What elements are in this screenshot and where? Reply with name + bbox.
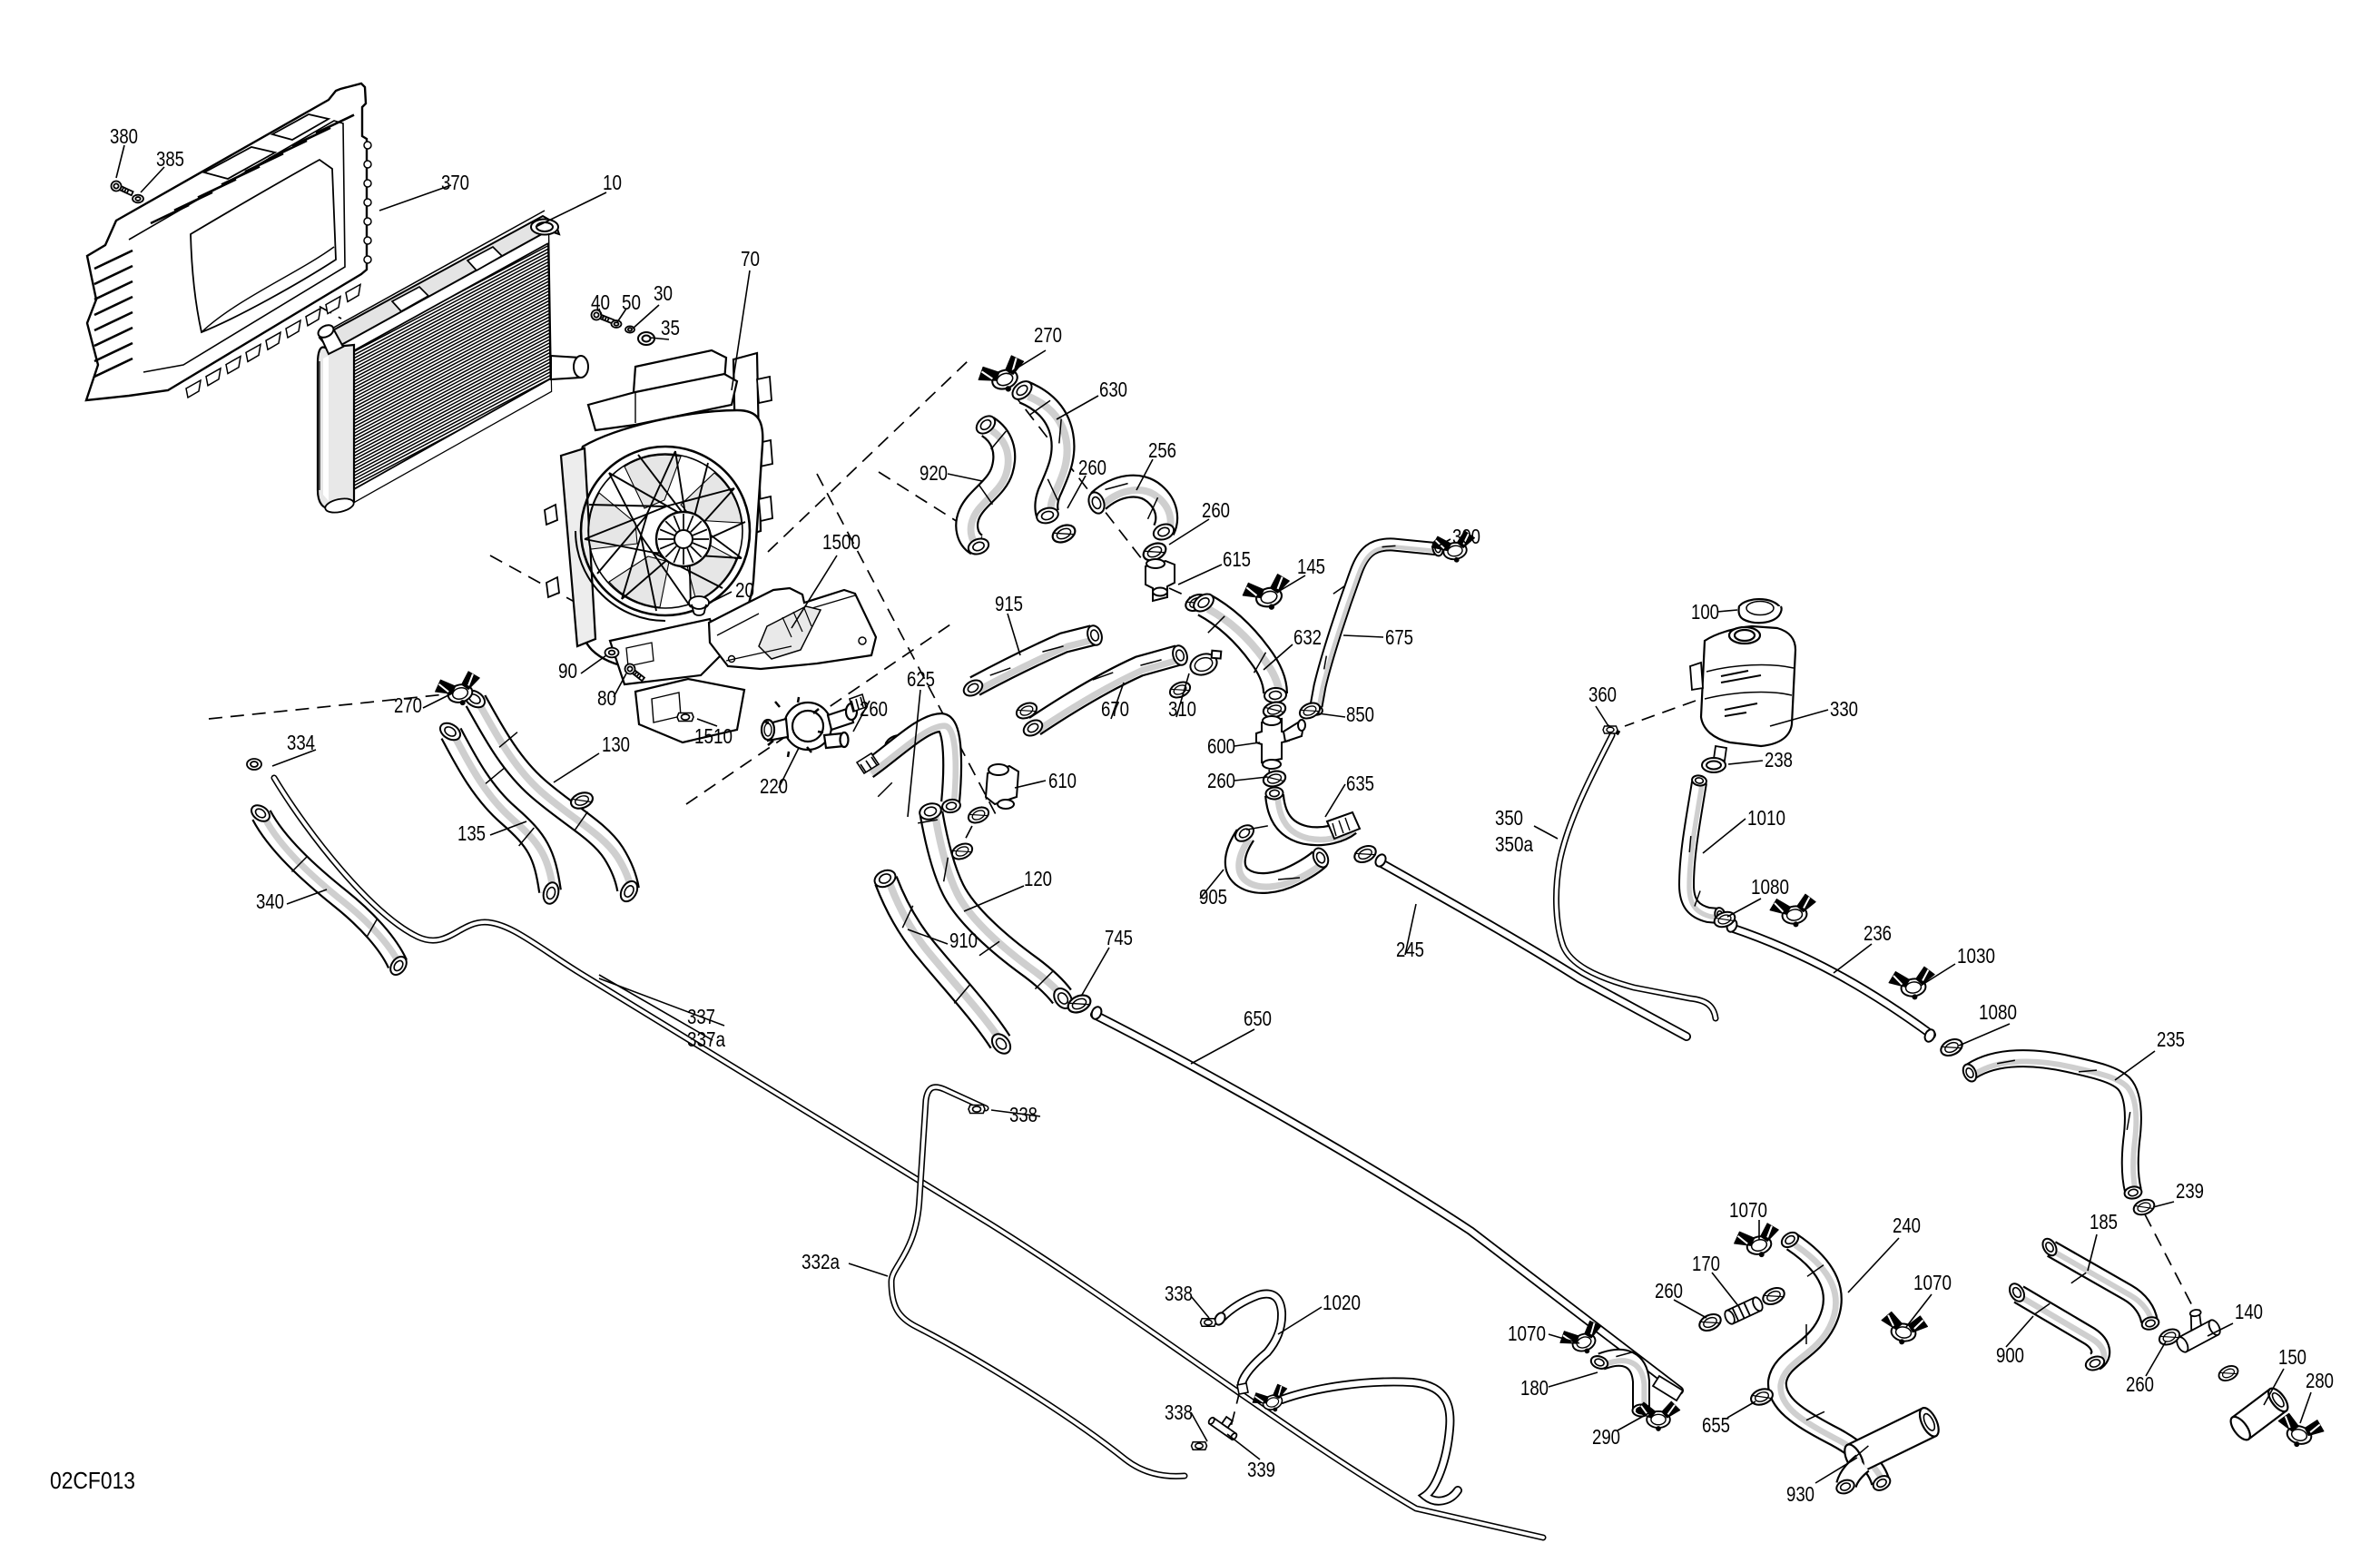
svg-text:920: 920 (920, 461, 948, 485)
svg-text:245: 245 (1396, 938, 1424, 961)
svg-text:140: 140 (2235, 1300, 2263, 1323)
svg-text:270: 270 (1034, 323, 1062, 347)
svg-text:910: 910 (949, 929, 978, 952)
svg-text:380: 380 (110, 124, 138, 148)
svg-text:1500: 1500 (822, 530, 861, 554)
svg-text:1080: 1080 (1979, 1000, 2017, 1024)
svg-text:360: 360 (1588, 683, 1617, 706)
svg-text:256: 256 (1148, 438, 1176, 462)
svg-text:655: 655 (1702, 1413, 1730, 1437)
svg-text:260: 260 (1202, 498, 1230, 522)
svg-text:90: 90 (558, 659, 577, 683)
svg-text:70: 70 (741, 247, 760, 270)
svg-text:337: 337 (687, 1005, 715, 1028)
svg-text:650: 650 (1244, 1007, 1272, 1030)
svg-text:80: 80 (597, 686, 616, 710)
svg-text:610: 610 (1048, 769, 1077, 792)
svg-text:220: 220 (760, 774, 788, 798)
svg-text:1070: 1070 (1508, 1322, 1546, 1345)
svg-text:615: 615 (1223, 547, 1251, 571)
svg-text:350a: 350a (1495, 832, 1533, 856)
svg-text:240: 240 (1893, 1214, 1921, 1237)
svg-text:290: 290 (1592, 1425, 1620, 1449)
svg-text:745: 745 (1105, 926, 1133, 949)
svg-text:338: 338 (1165, 1282, 1193, 1305)
svg-text:260: 260 (860, 697, 888, 721)
svg-text:40: 40 (591, 290, 610, 314)
svg-text:370: 370 (441, 171, 469, 194)
svg-text:915: 915 (995, 592, 1023, 615)
svg-text:02CF013: 02CF013 (50, 1467, 135, 1494)
svg-text:300: 300 (1452, 525, 1480, 548)
svg-text:145: 145 (1297, 555, 1325, 578)
svg-text:150: 150 (2278, 1345, 2306, 1369)
svg-text:30: 30 (654, 281, 673, 305)
svg-text:385: 385 (156, 147, 184, 171)
svg-text:239: 239 (2176, 1179, 2204, 1203)
svg-text:270: 270 (394, 693, 422, 717)
svg-text:632: 632 (1293, 625, 1322, 649)
svg-text:330: 330 (1830, 697, 1858, 721)
svg-text:900: 900 (1996, 1343, 2024, 1367)
svg-text:332a: 332a (802, 1250, 840, 1273)
svg-text:334: 334 (287, 731, 315, 754)
svg-text:260: 260 (2126, 1372, 2154, 1396)
svg-text:625: 625 (907, 667, 935, 691)
svg-text:600: 600 (1207, 734, 1235, 758)
svg-text:185: 185 (2090, 1210, 2118, 1233)
svg-text:675: 675 (1385, 625, 1413, 649)
svg-text:260: 260 (1655, 1279, 1683, 1302)
svg-text:630: 630 (1099, 378, 1127, 401)
svg-text:135: 135 (457, 821, 486, 845)
svg-text:260: 260 (1078, 456, 1106, 479)
svg-text:1510: 1510 (694, 724, 733, 748)
svg-text:236: 236 (1864, 921, 1892, 945)
svg-text:10: 10 (603, 171, 622, 194)
svg-text:1080: 1080 (1751, 875, 1789, 899)
svg-text:260: 260 (1207, 769, 1235, 792)
svg-text:310: 310 (1168, 697, 1196, 721)
svg-text:100: 100 (1691, 600, 1719, 624)
svg-text:1070: 1070 (1913, 1271, 1952, 1294)
svg-text:238: 238 (1765, 748, 1793, 771)
svg-text:35: 35 (661, 316, 680, 339)
svg-text:130: 130 (602, 732, 630, 756)
svg-text:1010: 1010 (1747, 806, 1785, 830)
svg-text:337a: 337a (687, 1027, 725, 1051)
svg-text:350: 350 (1495, 806, 1523, 830)
svg-text:50: 50 (622, 290, 641, 314)
svg-text:1030: 1030 (1957, 944, 1995, 968)
svg-text:850: 850 (1346, 703, 1374, 726)
svg-text:120: 120 (1024, 867, 1052, 890)
svg-text:235: 235 (2157, 1027, 2185, 1051)
svg-text:1070: 1070 (1729, 1198, 1767, 1222)
svg-text:170: 170 (1692, 1252, 1720, 1275)
svg-text:905: 905 (1199, 885, 1227, 909)
svg-text:635: 635 (1346, 771, 1374, 795)
svg-text:338: 338 (1009, 1103, 1038, 1126)
svg-text:339: 339 (1247, 1458, 1275, 1481)
svg-text:20: 20 (735, 578, 754, 602)
svg-text:930: 930 (1786, 1482, 1815, 1506)
svg-text:280: 280 (2306, 1369, 2334, 1392)
svg-text:180: 180 (1520, 1376, 1549, 1400)
svg-text:1020: 1020 (1323, 1291, 1361, 1314)
svg-text:670: 670 (1101, 697, 1129, 721)
svg-text:340: 340 (256, 889, 284, 913)
svg-text:338: 338 (1165, 1400, 1193, 1424)
